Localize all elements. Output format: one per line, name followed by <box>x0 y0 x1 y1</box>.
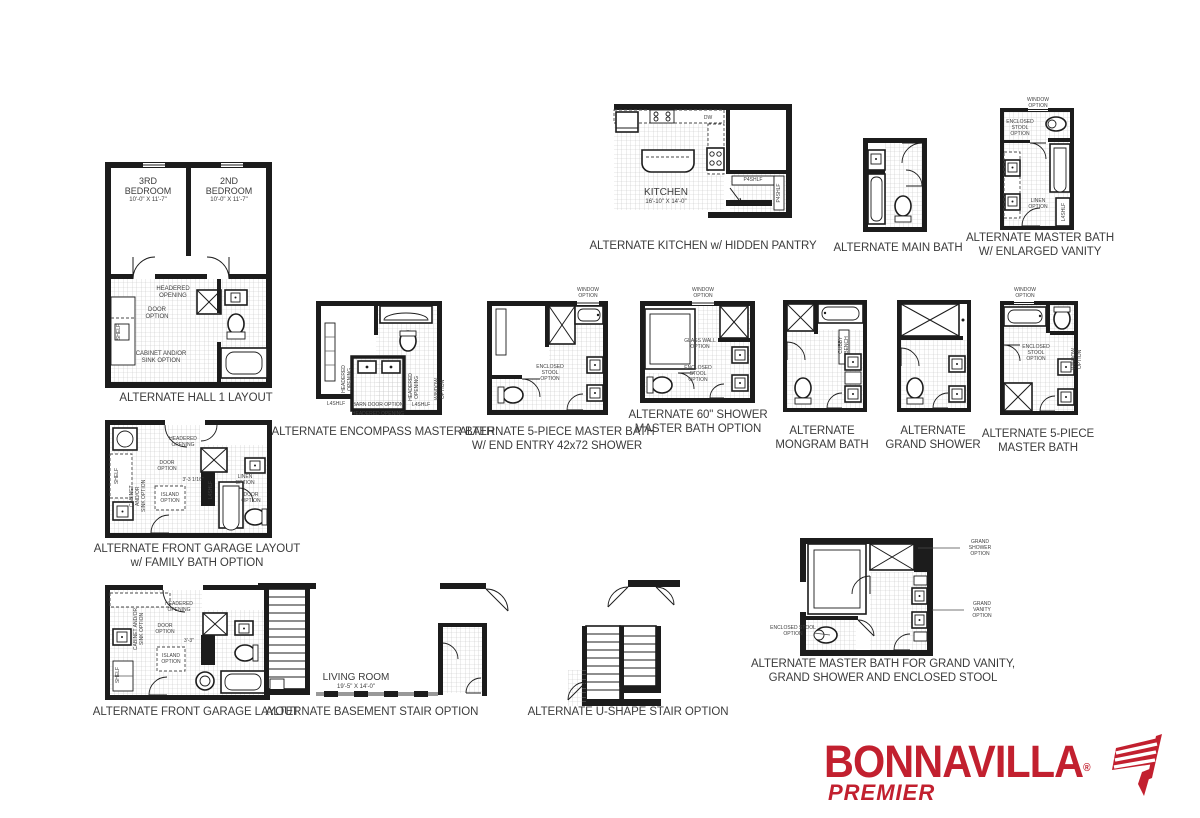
label-headered-opening-bottom: HEADERED OPENING <box>352 411 404 417</box>
laundry-sink <box>196 672 214 690</box>
shower <box>787 304 814 331</box>
plan-main-bath <box>863 138 927 232</box>
caption-mongram-2: MONGRAM BATH <box>775 439 868 451</box>
label-headered-opening: HEADERED OPENING <box>169 436 197 448</box>
label-linen-option: LINEN OPTION <box>1028 198 1047 210</box>
registered-mark: ® <box>1083 762 1090 774</box>
label-window-option: WINDOW OPTION <box>1020 97 1056 109</box>
caption-grand-shower-2: GRAND SHOWER <box>885 439 980 451</box>
toilet <box>400 331 416 351</box>
entry-porch <box>568 670 586 706</box>
sink <box>235 621 253 635</box>
bathtub <box>380 306 432 323</box>
label-door-option: DOOR OPTION <box>157 460 176 472</box>
toilet <box>227 314 245 339</box>
grand-shower <box>870 544 922 570</box>
room-living-room: LIVING ROOM19'-5" X 14'-0" <box>323 672 390 690</box>
shower <box>901 304 965 336</box>
vanity-sinks <box>845 354 861 402</box>
label-linen-option: LINEN OPTION <box>235 474 254 486</box>
label-cabinet-sink-option: CABINET AND/OR SINK OPTION <box>136 351 187 365</box>
bonnavilla-logo: BONNAVILLA® PREMIER <box>824 736 1184 811</box>
caption-five-end-2: W/ END ENTRY 42x72 SHOWER <box>472 440 642 452</box>
bathtub <box>868 174 885 224</box>
toilet <box>498 387 523 403</box>
plan-front-garage: HEADERED OPENING DOOR OPTION 3'-3" ISLAN… <box>105 585 270 700</box>
caption-garage-family-1: ALTERNATE FRONT GARAGE LAYOUT <box>94 543 300 555</box>
closet <box>496 309 506 355</box>
bathtub <box>221 348 267 378</box>
label-island-option: ISLAND OPTION <box>160 492 179 504</box>
flag-icon <box>1112 734 1170 800</box>
encompass-drawing <box>316 301 442 415</box>
bathtub <box>575 306 603 324</box>
cooktop <box>650 110 674 123</box>
refrigerator <box>616 112 638 132</box>
label-dishwasher: DW <box>704 115 712 121</box>
plan-hall1-layout: 3RD BEDROOM10'-0" X 11'-7" 2ND BEDROOM10… <box>105 152 272 388</box>
brand-premier: PREMIER <box>828 780 935 806</box>
label-headered-opening: HEADERED OPENING <box>156 286 189 300</box>
label-pantry-shelf-side: P4SHLF <box>776 184 782 203</box>
label-barn-door-option: BARN DOOR OPTION <box>353 402 404 408</box>
shower <box>1004 383 1032 411</box>
kitchen-island <box>642 150 694 172</box>
main-bath-drawing <box>863 138 927 232</box>
staircase <box>264 589 310 693</box>
caption-shower60-2: MASTER BATH OPTION <box>635 423 761 435</box>
sink <box>225 290 247 305</box>
plan-front-garage-family-bath: HEADERED OPENING DOOR OPTION 3'-3 1/16" … <box>105 420 272 538</box>
floorplan-sheet: 3RD BEDROOM10'-0" X 11'-7" 2ND BEDROOM10… <box>0 0 1200 818</box>
toilet <box>814 627 837 643</box>
caption-garage-family-2: w/ FAMILY BATH OPTION <box>131 557 264 569</box>
caption-master-vanity-2: W/ ENLARGED VANITY <box>979 246 1102 258</box>
five-end-drawing <box>487 301 608 415</box>
sink <box>245 458 265 473</box>
plan-master-bath-enlarged-vanity: WINDOW OPTION ENCLOSED STOOL OPTION LINE… <box>1000 108 1074 230</box>
washer <box>113 428 137 450</box>
plan-5piece-end-entry: WINDOW OPTION ENCLOSED STOOL OPTION <box>487 301 608 415</box>
plan-grand-shower <box>897 300 971 412</box>
plan-grand-master-bath: GRAND SHOWER OPTION GRAND VANITY OPTION … <box>768 532 1003 660</box>
room-kitchen: KITCHEN16'-10" X 14'-0" <box>644 187 688 205</box>
room-bedroom2: 2ND BEDROOM10'-0" X 11'-7" <box>206 176 253 204</box>
label-enclosed-stool-option: ENCLOSED STOOL OPTION <box>1022 344 1050 362</box>
sink-cabinet <box>113 629 131 645</box>
closet <box>808 544 866 614</box>
plan-60-shower: WINDOW OPTION GLASS WALL OPTION ENCLOSED… <box>640 301 755 403</box>
label-window-option-side: WINDOW OPTION <box>1071 348 1083 370</box>
label-enclosed-stool-option: ENCLOSED STOOL OPTION <box>770 625 816 637</box>
toilet <box>647 377 672 393</box>
label-linen-shelf-right: L4SHLF <box>412 402 430 408</box>
label-pantry-shelf: P4SHLF <box>744 177 763 183</box>
plan-5piece-master-bath: WINDOW OPTION ENCLOSED STOOL OPTION WIND… <box>1000 301 1078 415</box>
caption-five2-2: MASTER BATH <box>998 442 1078 454</box>
label-linen-shelf: L4SHLF <box>1061 203 1067 221</box>
caption-kitchen: ALTERNATE KITCHEN w/ HIDDEN PANTRY <box>589 240 816 252</box>
mongram-drawing <box>783 300 867 412</box>
toilet <box>907 378 923 404</box>
u-stair-drawing <box>568 580 680 706</box>
toilet <box>895 196 911 222</box>
closet <box>325 323 335 381</box>
range <box>707 148 724 170</box>
plan-mongram-bath: CUBBY BENCH <box>783 300 867 412</box>
caption-five-end-1: ALTERNATE 5-PIECE MASTER BATH <box>459 426 654 438</box>
toilet <box>1054 307 1070 329</box>
caption-grand-master-1: ALTERNATE MASTER BATH FOR GRAND VANITY, <box>751 658 1015 670</box>
label-cubby-bench: CUBBY BENCH <box>838 336 850 354</box>
plan-kitchen: DW P4SHLF P4SHLF KITCHEN16'-10" X 14'-0" <box>608 100 798 222</box>
label-door-option-2: DOOR OPTION <box>241 492 260 504</box>
label-enclosed-stool-option: ENCLOSED STOOL OPTION <box>684 365 712 383</box>
bathtub <box>1004 307 1046 326</box>
label-door-option: DOOR OPTION <box>145 307 168 321</box>
label-shelf: SHELF <box>114 468 120 484</box>
label-shelf: SHELF <box>116 324 122 340</box>
grand-shower-drawing <box>897 300 971 412</box>
caption-five2-1: ALTERNATE 5-PIECE <box>982 428 1094 440</box>
label-shelf: SHELF <box>115 667 121 683</box>
bathtub <box>1050 144 1070 192</box>
label-enclosed-stool-option: ENCLOSED STOOL OPTION <box>536 364 564 382</box>
shower <box>720 306 748 338</box>
label-cabinet-sink-option: CABINET AND/OR SINK OPTION <box>133 608 145 650</box>
label-enclosed-stool-option: ENCLOSED STOOL OPTION <box>1006 119 1034 137</box>
label-window-option: WINDOW OPTION <box>1014 287 1036 299</box>
label-headered-opening-right: HEADERED OPENING <box>408 373 420 401</box>
label-dimension: 3'-3" <box>184 638 194 644</box>
caption-mongram-1: ALTERNATE <box>789 425 854 437</box>
stair-flight-left <box>582 626 620 704</box>
label-headered-opening-left: HEADERED OPENING <box>341 365 353 393</box>
label-island-option: ISLAND OPTION <box>161 653 180 665</box>
entry-vestibule <box>438 583 508 696</box>
caption-shower60-1: ALTERNATE 60" SHOWER <box>628 409 767 421</box>
caption-main-bath: ALTERNATE MAIN BATH <box>833 242 962 254</box>
label-grand-vanity-option: GRAND VANITY OPTION <box>972 601 993 619</box>
caption-grand-shower-1: ALTERNATE <box>900 425 965 437</box>
plan-u-shape-stair <box>568 580 680 706</box>
label-linen-shelf: L4SHLF <box>208 481 214 499</box>
vanity-sinks <box>1004 152 1020 218</box>
label-headered-opening: HEADERED OPENING <box>165 601 193 613</box>
plan-basement-stair: LIVING ROOM19'-5" X 14'-0" <box>258 583 508 705</box>
bathtub <box>818 304 863 323</box>
caption-hall1: ALTERNATE HALL 1 LAYOUT <box>119 392 272 404</box>
room-bedroom3: 3RD BEDROOM10'-0" X 11'-7" <box>125 176 172 204</box>
plan-encompass-master-bath: HEADERED OPENING HEADERED OPENING L4SHLF… <box>316 301 442 415</box>
toilet <box>1046 117 1066 131</box>
label-glass-wall-option: GLASS WALL OPTION <box>684 338 716 350</box>
label-dimension: 3'-3 1/16" <box>182 477 203 483</box>
label-window-option: WINDOW OPTION <box>577 287 599 299</box>
toilet <box>795 378 811 404</box>
linen-cabinet <box>549 306 575 344</box>
caption-grand-master-2: GRAND SHOWER AND ENCLOSED STOOL <box>769 672 998 684</box>
label-grand-shower-option: GRAND SHOWER OPTION <box>969 539 992 557</box>
toilet <box>235 645 258 661</box>
shower <box>203 613 227 635</box>
shower60-drawing <box>640 301 755 403</box>
closet-shelf <box>111 297 135 365</box>
sink <box>868 150 885 170</box>
label-window-option-side: WINDOW OPTION <box>434 378 446 400</box>
toilet <box>245 509 267 525</box>
label-window-option: WINDOW OPTION <box>692 287 714 299</box>
label-linen-shelf-left: L4SHLF <box>327 401 345 407</box>
bathtub <box>219 482 243 530</box>
marriage-wall <box>316 691 438 697</box>
label-door-option: DOOR OPTION <box>155 623 174 635</box>
caption-u-stair: ALTERNATE U-SHAPE STAIR OPTION <box>528 706 729 718</box>
caption-master-vanity-1: ALTERNATE MASTER BATH <box>966 232 1114 244</box>
label-cabinet-sink-option: CABINET AND/OR SINK OPTION <box>129 475 147 517</box>
caption-basement-stair: ALTERNATE BASEMENT STAIR OPTION <box>266 706 479 718</box>
shower <box>201 448 227 472</box>
